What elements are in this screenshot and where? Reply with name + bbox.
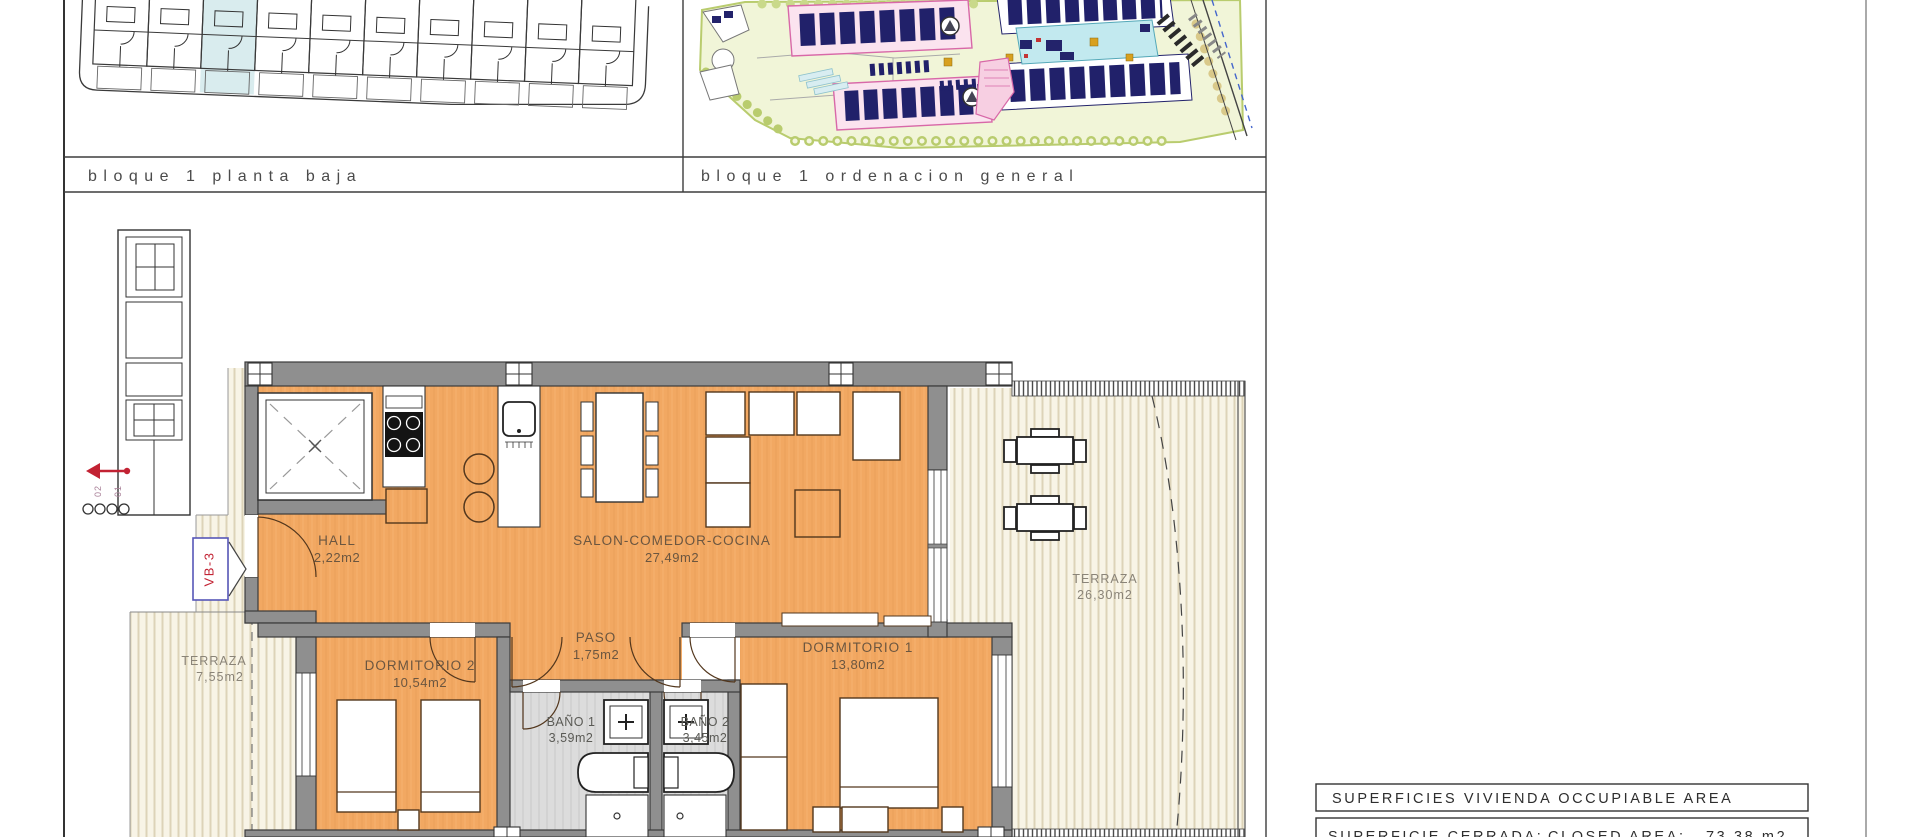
room-label-paso: PASO	[576, 630, 617, 645]
bed-single	[421, 700, 480, 812]
summary-row-label-es: SUPERFICIE CERRADA:	[1328, 829, 1543, 837]
window-dorm1	[992, 655, 1012, 787]
room-label-dorm1: DORMITORIO 1	[803, 640, 914, 655]
summary-table: SUPERFICIES VIVIENDA OCCUPIABLE AREA SUP…	[1316, 784, 1808, 837]
svg-text:13,80m2: 13,80m2	[831, 657, 885, 672]
nightstand	[942, 807, 963, 832]
pillar-window-icon	[986, 363, 1012, 385]
nightstand	[398, 810, 419, 830]
nightstand	[813, 807, 840, 832]
pergola-band	[1012, 381, 1245, 396]
block-row-drawing	[79, 0, 649, 112]
kitchen-island	[386, 489, 427, 523]
architectural-sheet: bloque 1 planta baja bloque 1 ordenacion…	[0, 0, 1920, 837]
pillar-window-icon	[978, 827, 1004, 837]
kitchen-counter	[383, 386, 427, 523]
room-label-hall: HALL	[318, 533, 356, 548]
armchair	[853, 392, 900, 460]
svg-text:3,59m2: 3,59m2	[549, 731, 594, 745]
terrace-small-floor	[130, 612, 296, 837]
bench	[842, 807, 888, 832]
room-label-bano1: BAÑO 1	[547, 715, 596, 729]
svg-text:1,75m2: 1,75m2	[573, 647, 619, 662]
dining-table	[581, 393, 658, 502]
bed-single	[337, 700, 396, 812]
stair-section-strip: 02 01	[83, 230, 190, 515]
pillar-window-icon	[506, 363, 532, 385]
pillar-window-icon	[494, 827, 520, 837]
shower-tray	[604, 700, 648, 744]
svg-text:2,22m2: 2,22m2	[314, 550, 360, 565]
svg-text:26,30m2: 26,30m2	[1077, 588, 1133, 602]
vanity-wc	[664, 795, 726, 837]
floor-plan: 02 01 VB-3 HALL 2,22m2 SALON-COMEDOR-COC…	[83, 230, 1245, 837]
summary-row-label-en: CLOSED AREA:	[1548, 829, 1686, 837]
room-label-terraza-main: TERRAZA	[1072, 572, 1137, 586]
stair-level-label: 01	[113, 485, 123, 497]
pillar-window-icon	[829, 363, 853, 385]
stair-level-label: 02	[93, 485, 103, 497]
door-dorm1	[690, 637, 735, 682]
svg-text:27,49m2: 27,49m2	[645, 550, 699, 565]
sink-counter	[498, 386, 540, 527]
pillar-window-icon	[248, 363, 272, 385]
wardrobe	[741, 684, 787, 830]
room-label-bano2: BAÑO 2	[681, 715, 730, 729]
svg-text:10,54m2: 10,54m2	[393, 675, 447, 690]
window-dorm2	[296, 673, 316, 776]
svg-text:7,55m2: 7,55m2	[196, 670, 244, 684]
panel1-title: bloque 1 planta baja	[88, 168, 362, 185]
site-plan	[700, 0, 1252, 148]
window-salon-terrace	[928, 470, 947, 622]
roundabout-icon	[941, 17, 959, 35]
sheet-canvas: bloque 1 planta baja bloque 1 ordenacion…	[0, 0, 1920, 837]
svg-text:3,45m2: 3,45m2	[683, 731, 728, 745]
vanity-wc	[586, 795, 648, 837]
section-tag-label: VB-3	[201, 552, 216, 587]
room-label-terraza-small: TERRAZA	[181, 654, 246, 668]
entry-walkway-floor	[228, 368, 245, 518]
pool-area	[1016, 20, 1158, 64]
bathtub	[664, 753, 734, 792]
room-label-dorm2: DORMITORIO 2	[365, 658, 476, 673]
bathtub	[578, 753, 648, 792]
patio-lightwell	[258, 393, 372, 500]
summary-table-title: SUPERFICIES VIVIENDA OCCUPIABLE AREA	[1332, 791, 1733, 807]
summary-row-value: 73,38 m2	[1706, 829, 1787, 837]
room-label-salon: SALON-COMEDOR-COCINA	[573, 533, 771, 548]
bed-double	[840, 698, 938, 808]
panel2-title: bloque 1 ordenacion general	[701, 168, 1079, 185]
